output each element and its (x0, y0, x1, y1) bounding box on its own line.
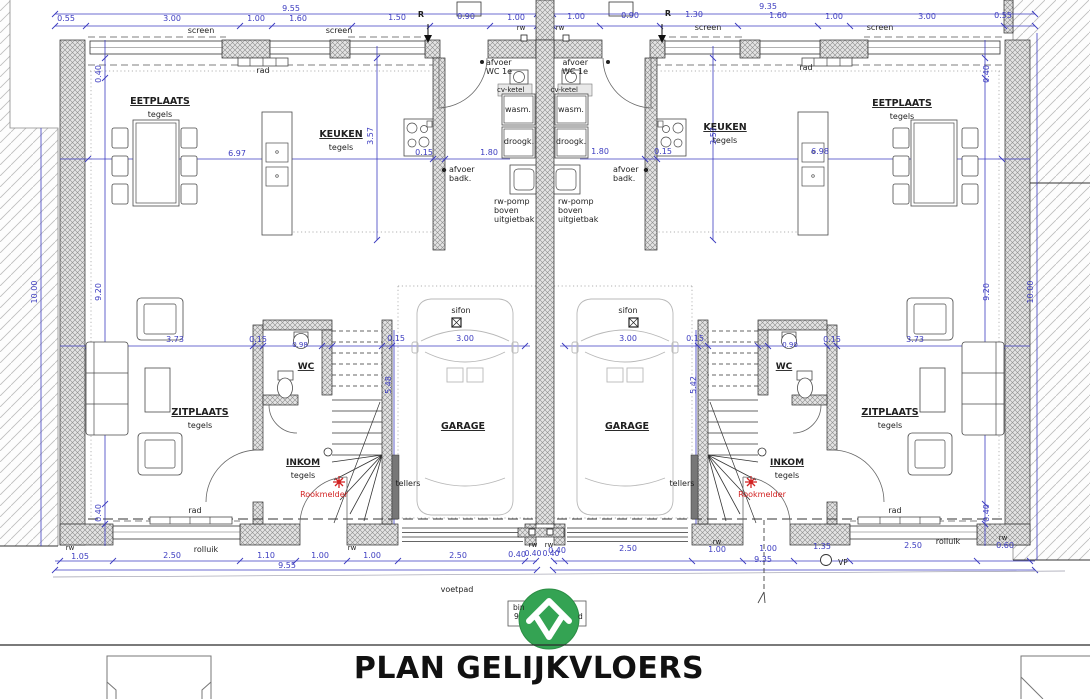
label-afvoer-79: afvoer (562, 58, 588, 67)
label-3-73-56: 3.73 (166, 335, 184, 344)
label-rolluik-66: rolluik (194, 545, 219, 554)
label-1-00-14: 1.00 (567, 12, 585, 21)
label-1-05-64: 1.05 (71, 552, 89, 561)
label-0-55-1: 0.55 (57, 14, 75, 23)
label-wc-1e-80: WC 1e (562, 67, 588, 76)
room-keuken-left: KEUKEN (319, 129, 362, 140)
label-tegels-60: tegels (291, 471, 315, 480)
label-rad-116: rad (888, 506, 901, 515)
label-boven-33: boven (494, 206, 519, 215)
floor-plan-page: 9.550.553.001.001.601.50R0.901.00screens… (0, 0, 1090, 699)
label-rw-69: rw (348, 544, 357, 552)
room-eetplaats-right: EETPLAATS (872, 98, 932, 109)
label-0-90-7: 0.90 (457, 12, 475, 21)
dim-total-left: 9.55 (282, 4, 300, 13)
label-2-50-118: 2.50 (619, 544, 637, 553)
label-0-60-126: 0.60 (996, 541, 1014, 550)
room-inkom-left: INKOM (286, 458, 320, 468)
label-screen-9: screen (188, 26, 215, 35)
label-1-00-68: 1.00 (311, 551, 329, 560)
label-sifon-101: sifon (618, 306, 637, 315)
voetpad-label: voetpad (441, 585, 474, 594)
label-uitgietbak-88: uitgietbak (558, 215, 599, 224)
label-9-131: 9 (514, 612, 519, 621)
label-3-00-49: 3.00 (456, 334, 474, 343)
label-rw-12: rw (556, 24, 565, 32)
dim-total-right: 9.35 (759, 2, 777, 11)
label-0-40-97: 0.40 (982, 65, 991, 83)
label-d-132: d (578, 612, 583, 621)
label-0-15-109: 0.15 (823, 335, 841, 344)
label-0-15-55: 0.15 (249, 335, 267, 344)
label-bin-130: bin (513, 603, 525, 612)
label-afvoer-84: afvoer (613, 165, 639, 174)
label-2-50-65: 2.50 (163, 551, 181, 560)
vp-mark: VP (838, 558, 848, 567)
partial-shape-left (107, 656, 211, 699)
room-zitplaats-right: ZITPLAATS (861, 407, 918, 418)
label-afvoer-25: afvoer (486, 58, 512, 67)
label-cv-ketel-27: cv-ketel (497, 86, 524, 94)
label-badk--85: badk. (613, 174, 635, 183)
label-0-15-94: 0.15 (654, 147, 672, 156)
label-tellers-52: tellers (396, 479, 421, 488)
floor-plan-svg: 9.550.553.001.001.601.50R0.901.00screens… (0, 0, 1090, 699)
label-3-73-110: 3.73 (906, 335, 924, 344)
label-0-40-43: 0.40 (94, 65, 103, 83)
label-1-10-67: 1.10 (257, 551, 275, 560)
label-0-40-117: 0.40 (548, 546, 566, 555)
label-1-00-121: 1.00 (759, 544, 777, 553)
label-1-60-4: 1.60 (289, 14, 307, 23)
label-1-00-3: 1.00 (247, 14, 265, 23)
room-eetplaats-left: EETPLAATS (130, 96, 190, 107)
section-arrow (758, 592, 765, 603)
label-3-00-2: 3.00 (163, 14, 181, 23)
label-boven-87: boven (558, 206, 583, 215)
house-right (550, 2, 1038, 573)
room-garage-right: GARAGE (605, 421, 649, 432)
label-screen-10: screen (326, 26, 353, 35)
label-1-60-18: 1.60 (769, 11, 787, 20)
label-rad-24: rad (256, 66, 269, 75)
label-0-15-40: 0.15 (415, 148, 433, 157)
house-left (52, 2, 540, 573)
label-tegels-112: tegels (878, 421, 902, 430)
label-1-00-8: 1.00 (507, 13, 525, 22)
label-1-80-41: 1.80 (480, 148, 498, 157)
label-9-20-98: 9.20 (982, 283, 991, 301)
label-rw-pomp-32: rw-pomp (494, 197, 530, 206)
label-1-80-93: 1.80 (591, 147, 609, 156)
label-tellers-106: tellers (670, 479, 695, 488)
label-0-15-103: 0.15 (686, 334, 704, 343)
label-tegels-36: tegels (148, 110, 172, 119)
label-0-90-108: 0.90 (782, 341, 798, 349)
label-3-57-42: 3.57 (366, 127, 375, 145)
label-tegels-114: tegels (775, 471, 799, 480)
label-screen-22: screen (695, 23, 722, 32)
label-afvoer-30: afvoer (449, 165, 475, 174)
label-0-40-99: 0.40 (982, 504, 991, 522)
vp-circle (821, 555, 832, 566)
label-screen-23: screen (867, 23, 894, 32)
r-mark-left: R (418, 10, 424, 19)
label-wc-1e-26: WC 1e (486, 67, 512, 76)
label-10-00-46: 10.00 (30, 281, 39, 304)
label-1-35-122: 1.35 (813, 542, 831, 551)
label-5-42-104: 5.42 (689, 376, 698, 394)
label-rw-11: rw (517, 24, 526, 32)
label-0-15-48: 0.15 (387, 334, 405, 343)
r-mark-right: R (665, 9, 671, 18)
neighbor-left (0, 0, 58, 546)
label-wasm--28: wasm. (505, 105, 531, 114)
label-1-00-120: 1.00 (708, 545, 726, 554)
label-0-55-21: 0.55 (994, 11, 1012, 20)
label-rad-78: rad (799, 63, 812, 72)
label-6-98-95: 6.98 (811, 147, 829, 156)
label-5-48-50: 5.48 (384, 376, 393, 394)
label-rw-pomp-86: rw-pomp (558, 197, 594, 206)
label-droogk--29: droogk. (504, 137, 534, 146)
label-rolluik-124: rolluik (936, 537, 961, 546)
dim-bottom-total-left: 9.55 (278, 561, 296, 570)
rookmelder-left: Rookmelder (300, 490, 349, 499)
label-0-90-15: 0.90 (621, 11, 639, 20)
label-10-00-100: 10.00 (1026, 281, 1035, 304)
plan-title: PLAN GELIJKVLOERS (354, 651, 704, 686)
label-badk--31: badk. (449, 174, 471, 183)
label-rw-63: rw (66, 544, 75, 552)
label-rad-62: rad (188, 506, 201, 515)
label-wasm--82: wasm. (558, 105, 584, 114)
label-sifon-47: sifon (451, 306, 470, 315)
rookmelder-right: Rookmelder (738, 490, 787, 499)
label-0-98-54: 0.98 (292, 341, 308, 349)
label-0-40-72: 0.40 (508, 550, 526, 559)
label-1-50-5: 1.50 (388, 13, 406, 22)
label-3-00-20: 3.00 (918, 12, 936, 21)
room-wc-left: WC (298, 362, 315, 372)
label-uitgietbak-34: uitgietbak (494, 215, 535, 224)
label-rw-73: rw (529, 541, 538, 549)
label-0-40-45: 0.40 (94, 504, 103, 522)
label-tegels-38: tegels (329, 143, 353, 152)
room-wc-right: WC (776, 362, 793, 372)
label-3-00-102: 3.00 (619, 334, 637, 343)
label-3-57-96: 3.57 (709, 127, 718, 145)
label-1-00-70: 1.00 (363, 551, 381, 560)
label-2-50-71: 2.50 (449, 551, 467, 560)
label-6-97-39: 6.97 (228, 149, 246, 158)
room-garage-left: GARAGE (441, 421, 485, 432)
room-zitplaats-left: ZITPLAATS (171, 407, 228, 418)
partial-shape-right (1021, 656, 1090, 699)
label-0-40-75: 0.40 (525, 549, 542, 558)
room-inkom-right: INKOM (770, 458, 804, 468)
dim-bottom-total-right: 9.35 (754, 555, 772, 564)
label-droogk--83: droogk. (556, 137, 586, 146)
label-9-20-44: 9.20 (94, 283, 103, 301)
label-cv-ketel-81: cv-ketel (551, 86, 578, 94)
house-logo (519, 589, 579, 649)
label-tegels-58: tegels (188, 421, 212, 430)
label-1-00-19: 1.00 (825, 12, 843, 21)
label-1-30-17: 1.30 (685, 10, 703, 19)
label-2-50-123: 2.50 (904, 541, 922, 550)
label-tegels-92: tegels (890, 112, 914, 121)
